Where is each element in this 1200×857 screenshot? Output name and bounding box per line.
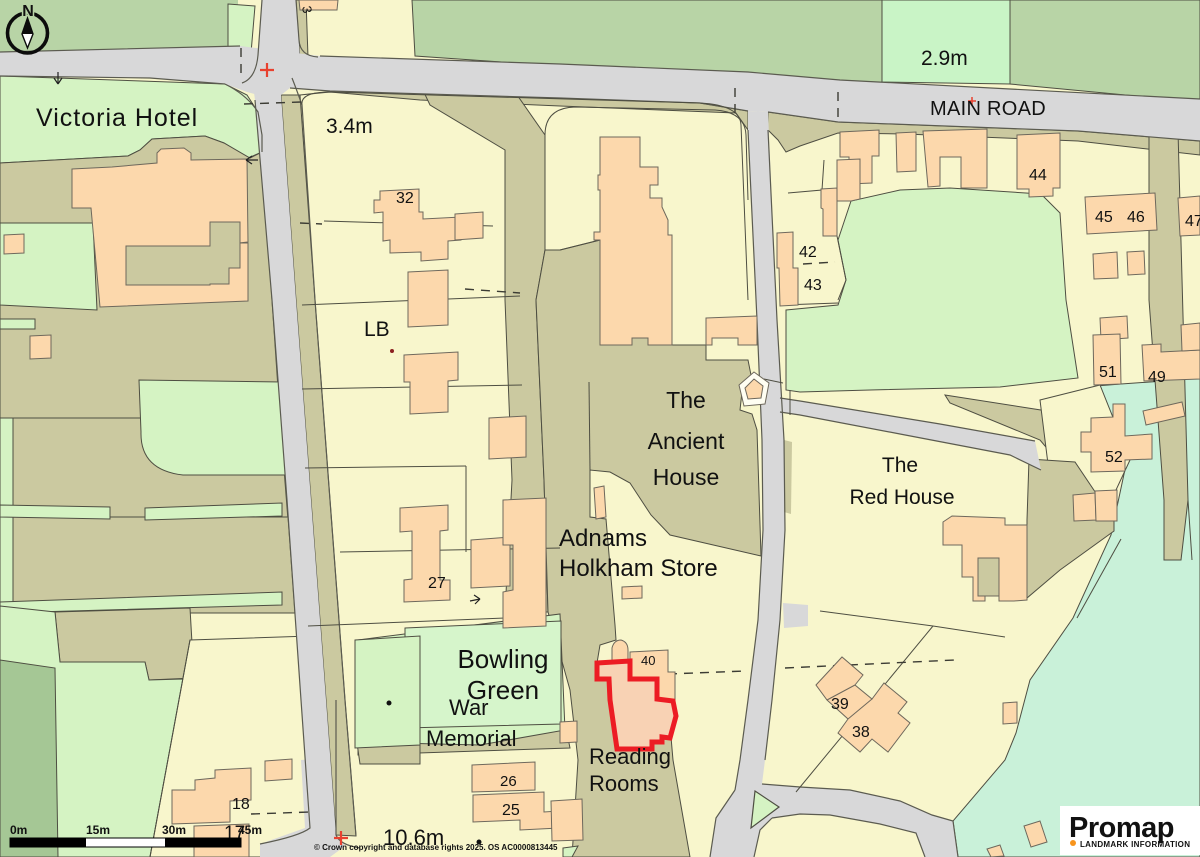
svg-text:0m: 0m: [10, 823, 27, 837]
svg-text:26: 26: [500, 773, 517, 790]
svg-text:44: 44: [1029, 167, 1047, 184]
svg-text:Victoria Hotel: Victoria Hotel: [36, 104, 198, 132]
svg-text:Adnams: Adnams: [559, 525, 647, 552]
svg-text:39: 39: [831, 696, 849, 713]
svg-text:LANDMARK INFORMATION: LANDMARK INFORMATION: [1080, 840, 1190, 849]
svg-text:The: The: [882, 454, 918, 477]
svg-text:LB: LB: [364, 318, 390, 341]
svg-text:51: 51: [1099, 364, 1117, 381]
svg-text:MAIN ROAD: MAIN ROAD: [930, 98, 1046, 120]
svg-text:Memorial: Memorial: [426, 726, 516, 751]
svg-text:46: 46: [1127, 209, 1145, 226]
svg-text:43: 43: [804, 277, 822, 294]
svg-text:49: 49: [1148, 369, 1166, 386]
svg-text:38: 38: [852, 724, 870, 741]
svg-text:30m: 30m: [162, 823, 186, 837]
svg-text:27: 27: [428, 575, 446, 592]
svg-text:32: 32: [396, 190, 414, 207]
svg-text:Reading: Reading: [589, 744, 671, 769]
svg-text:15m: 15m: [86, 823, 110, 837]
svg-text:3.4m: 3.4m: [326, 115, 373, 138]
svg-text:House: House: [653, 464, 719, 490]
svg-text:© Crown copyright and database: © Crown copyright and database rights 20…: [314, 843, 558, 852]
svg-text:Bowling: Bowling: [457, 644, 548, 674]
svg-text:N: N: [22, 3, 34, 20]
svg-text:Red House: Red House: [849, 486, 954, 509]
svg-text:2.9m: 2.9m: [921, 47, 968, 70]
svg-text:Holkham Store: Holkham Store: [559, 555, 718, 582]
svg-text:40: 40: [641, 653, 655, 668]
svg-text:18: 18: [232, 796, 250, 813]
svg-text:52: 52: [1105, 449, 1123, 466]
svg-text:Ancient: Ancient: [648, 428, 725, 454]
svg-text:25: 25: [502, 802, 520, 819]
svg-text:47: 47: [1185, 213, 1200, 230]
svg-text:The: The: [666, 387, 706, 413]
svg-text:42: 42: [799, 244, 817, 261]
svg-text:45m: 45m: [238, 823, 262, 837]
svg-text:Rooms: Rooms: [589, 771, 659, 796]
svg-text:45: 45: [1095, 209, 1113, 226]
svg-text:War: War: [449, 695, 489, 720]
